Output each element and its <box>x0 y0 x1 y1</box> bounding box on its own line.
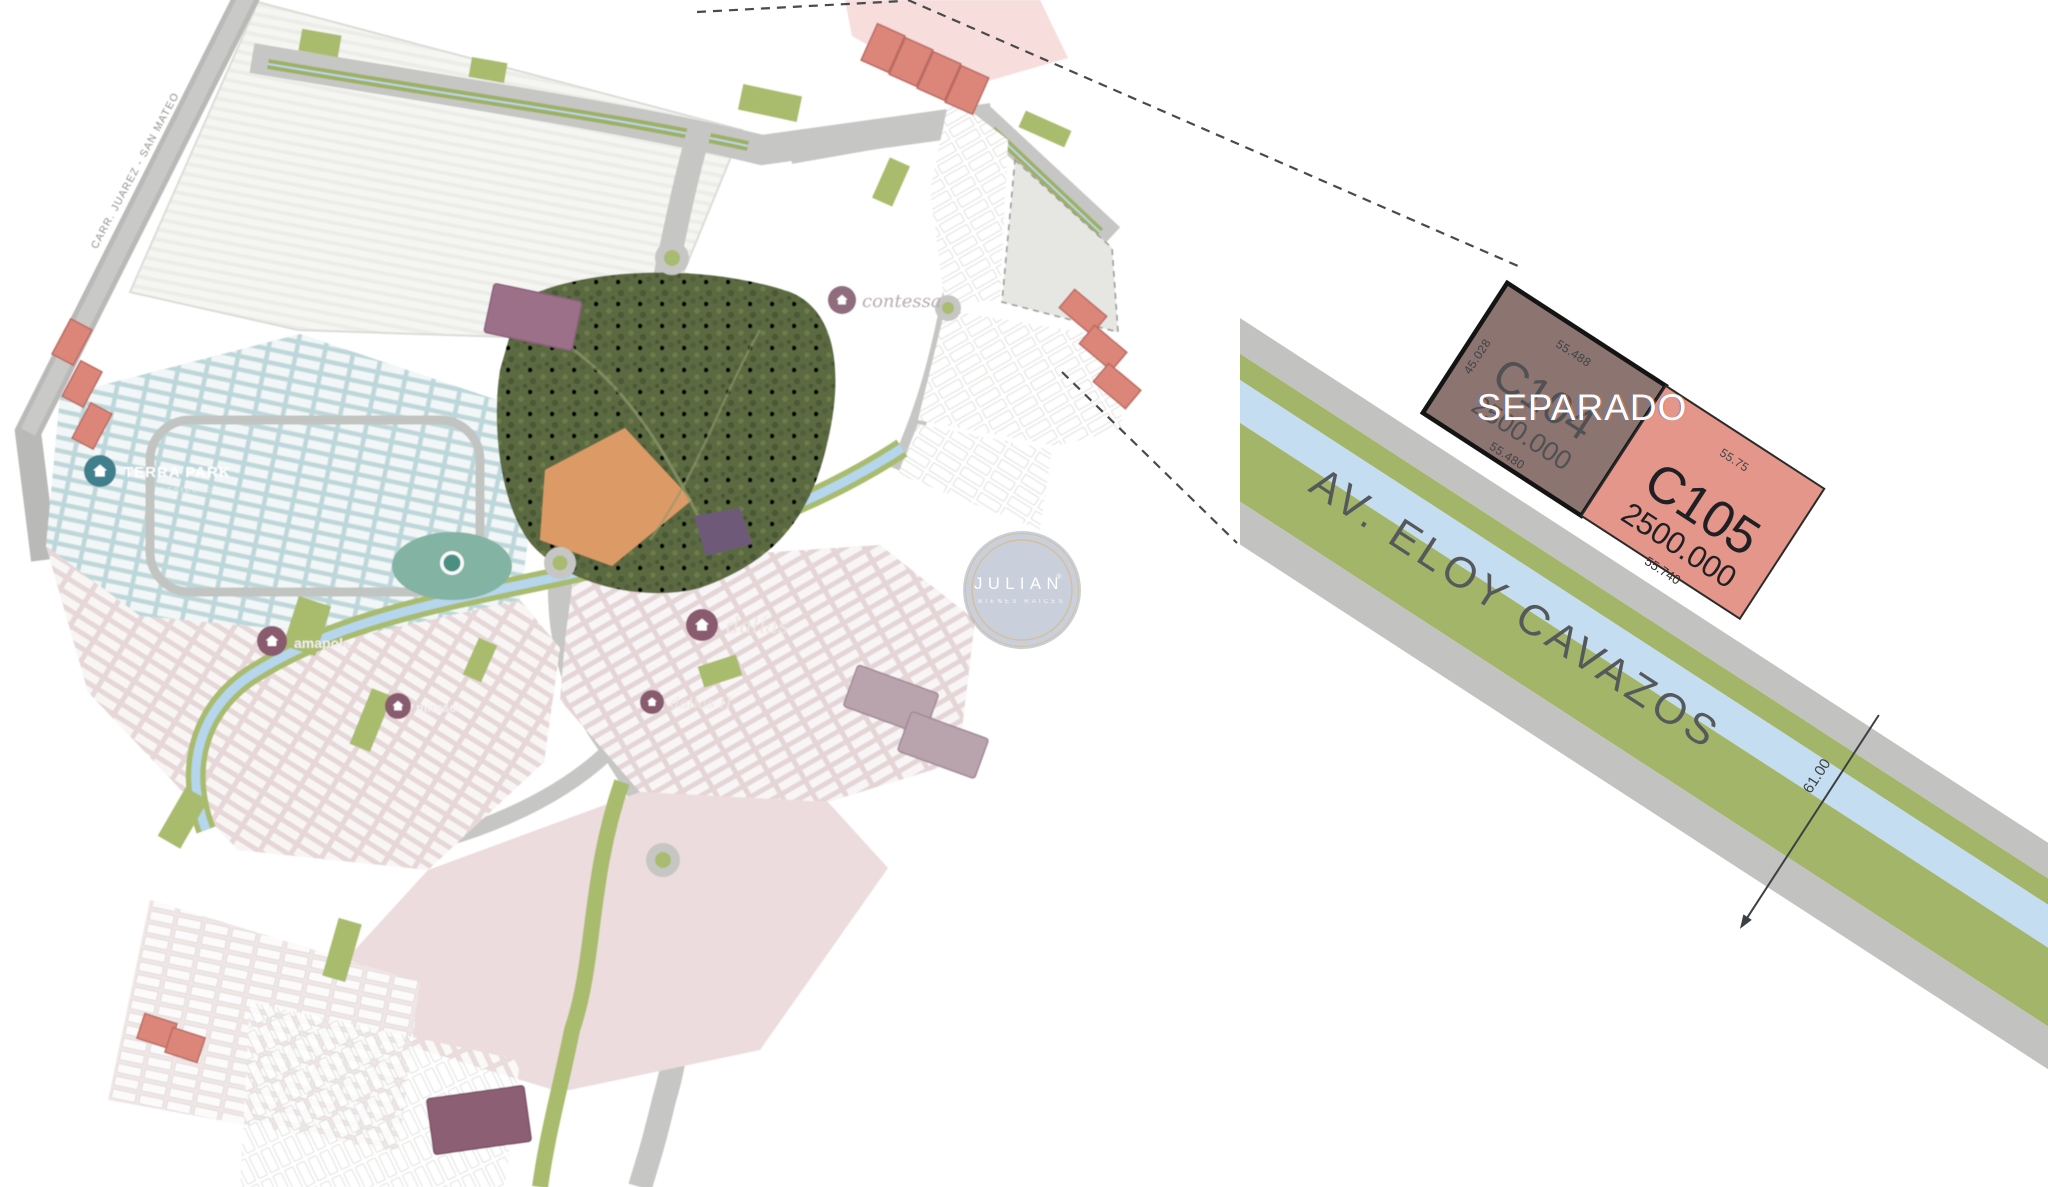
site-plan-canvas: TERRA PARK RESIDENCIAL contessa amapola … <box>0 0 2048 1187</box>
dalias-ii-label: dalías II <box>670 694 732 712</box>
terra-park-sublabel: RESIDENCIAL <box>160 487 231 494</box>
dalias-label: dalías <box>726 614 789 638</box>
julian-watermark: JULIAN ® BIENES RAICES <box>963 531 1081 649</box>
label-dalias: dalías <box>686 609 789 641</box>
mirasol-label: mirasol <box>416 701 460 715</box>
terra-park-label: TERRA PARK <box>124 464 231 481</box>
central-park <box>484 272 836 593</box>
watermark-brand: JULIAN <box>974 575 1064 593</box>
watermark-reg: ® <box>1056 573 1062 581</box>
watermark-tagline: BIENES RAICES <box>978 599 1066 605</box>
amapola-label: amapola <box>294 635 351 651</box>
contessa-label: contessa <box>862 291 942 312</box>
south-zone <box>108 782 888 1187</box>
dashed-leader-line <box>1062 372 1237 543</box>
lot-c104-status-badge: SEPARADO <box>1477 387 1688 428</box>
label-dalias-ii: dalías II <box>640 690 732 714</box>
section-arrow <box>1736 914 1752 931</box>
label-contessa: contessa <box>828 286 942 314</box>
